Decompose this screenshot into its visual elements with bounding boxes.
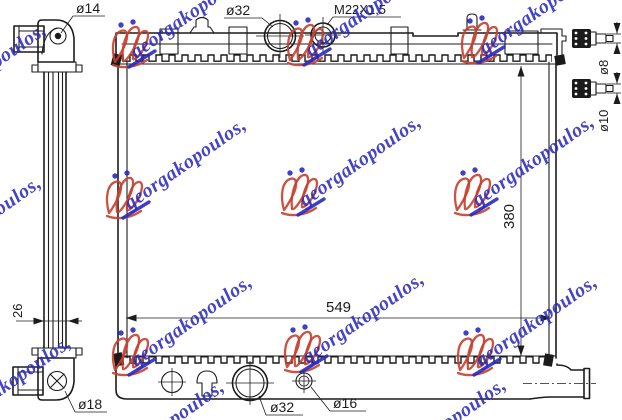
dim-label-o32-bottom: ø32	[270, 399, 294, 415]
dim-label-o16: ø16	[333, 395, 357, 411]
radiator-technical-drawing: ø14 ø18 26	[0, 0, 622, 420]
dim-label-o18: ø18	[78, 396, 102, 412]
dim-label-549: 549	[326, 299, 351, 316]
dim-label-380: 380	[501, 204, 518, 229]
mount-top-right	[554, 54, 566, 66]
bolt-center	[55, 33, 61, 39]
dim-label-26: 26	[10, 304, 25, 318]
drawing-canvas: ø14 ø18 26	[0, 0, 622, 420]
dim-label-o14: ø14	[76, 0, 100, 16]
dim-label-o32-top: ø32	[226, 2, 250, 18]
dim-label-o8: ø8	[596, 60, 611, 75]
